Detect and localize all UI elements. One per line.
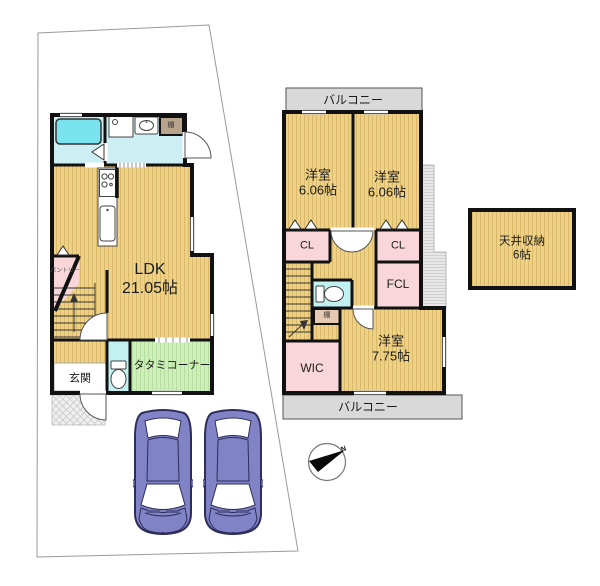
bedroom-right-size: 6.06帖: [368, 185, 406, 200]
pantry-label: パントリー: [50, 268, 80, 275]
balcony-top-label: バルコニー: [323, 93, 383, 107]
floor2-fixtures: [316, 286, 344, 302]
toilet-2f-tank: [316, 286, 324, 302]
shelf-1f-label: 棚: [168, 122, 175, 130]
bedroom-main-name: 洋室: [372, 334, 410, 349]
bedroom-right-label: 洋室 6.06帖: [368, 170, 406, 201]
roof-strip: [421, 165, 446, 309]
attic-size: 6帖: [499, 249, 545, 263]
bedroom-right-name: 洋室: [368, 170, 406, 185]
bedroom-left-size: 6.06帖: [299, 183, 337, 198]
toilet-2f-bowl: [325, 287, 344, 302]
bedroom-main-size: 7.75帖: [372, 349, 410, 364]
toilet-1f-bowl: [111, 370, 126, 389]
compass: [309, 444, 346, 481]
closet-right-label: CL: [391, 240, 405, 253]
car-right: [199, 410, 267, 535]
bathtub: [56, 119, 101, 144]
closet-left-label: CL: [300, 240, 314, 253]
car-left: [129, 410, 197, 535]
bedroom-left-label: 洋室 6.06帖: [299, 168, 337, 199]
balcony-bottom-label: バルコニー: [338, 400, 398, 414]
ldk-label: LDK 21.05帖: [122, 261, 178, 299]
tatami-corner-label: タタミコーナー: [134, 360, 211, 373]
wic-label: WIC: [300, 361, 323, 375]
ldk-name: LDK: [122, 261, 178, 280]
bedroom-main-label: 洋室 7.75帖: [372, 334, 410, 365]
genkan-label: 玄関: [69, 373, 91, 386]
attic-name: 天井収納: [499, 235, 545, 249]
attic-label: 天井収納 6帖: [499, 235, 545, 262]
floor-plan: LDK 21.05帖 タタミコーナー 玄関 パントリー 棚 バルコニー 洋室 6…: [0, 0, 600, 586]
fcl-label: FCL: [387, 277, 410, 291]
ldk-size: 21.05帖: [122, 280, 178, 299]
bedroom-left-name: 洋室: [299, 168, 337, 183]
kitchen-sink: [100, 206, 115, 241]
shelf-2f-label: 棚: [324, 312, 331, 320]
toilet-1f-tank: [111, 361, 126, 369]
washstand: [109, 116, 133, 137]
floor-plan-canvas: [0, 0, 600, 586]
